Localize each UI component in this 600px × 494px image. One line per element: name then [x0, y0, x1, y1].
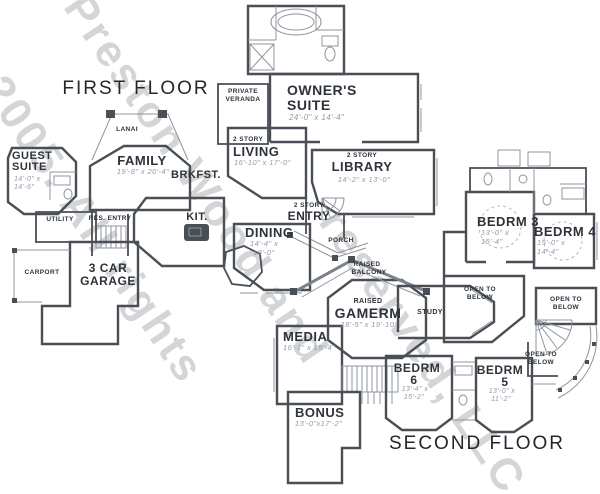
owners-suite-dims: 24'-0" x 14'-4": [289, 114, 344, 122]
raised-balcony-label-2: BALCONY: [352, 270, 387, 277]
open-below-1: OPEN TO: [464, 287, 496, 294]
living-tag: 2 STORY: [233, 137, 263, 144]
room-label-brkfst: BRKFST.: [171, 170, 221, 181]
library-dims: 14'-2" x 13'-0": [338, 176, 390, 184]
gamerm-dims: 18'-5" x 19'-10": [341, 321, 398, 329]
bedrm6-dims-1: 13'-4" x: [402, 386, 428, 393]
room-label-porch: PORCH: [328, 238, 353, 245]
room-label-bonus: BONUS: [295, 406, 344, 419]
closet-icon: [250, 44, 274, 70]
stairs-icon: [96, 226, 126, 248]
bedrm3-dims-2: 15'-4": [481, 238, 503, 246]
dining-dims-1: 14'-4" x: [250, 240, 278, 248]
open-below-2b: BELOW: [553, 305, 579, 312]
family-dims: 19'-8" x 20'-4": [117, 168, 169, 176]
room-label-bedrm5-num: 5: [501, 376, 508, 388]
kitchen-island-icon: [184, 224, 209, 241]
room-label-bedrm4: BEDRM 4: [534, 225, 596, 238]
room-label-family: FAMILY: [117, 154, 166, 167]
room-label-private-veranda: PRIVATE: [228, 89, 258, 96]
room-label-dining: DINING: [245, 226, 294, 239]
room-label-media: MEDIA: [283, 330, 327, 343]
bonus-dims: 13'-0"x17'-2": [295, 420, 342, 428]
bedrm4-dims-2: 14'-4": [537, 248, 559, 256]
guest-suite-dims-1: 14'-0" x: [14, 176, 40, 183]
room-label-kitchen: KIT.: [186, 212, 208, 223]
room-label-bedrm3: BEDRM 3: [477, 215, 539, 228]
room-label-carport: CARPORT: [25, 270, 60, 277]
room-label-private-veranda-2: VERANDA: [226, 97, 261, 104]
second-floor-title: SECOND FLOOR: [389, 434, 565, 453]
open-below-3b: BELOW: [528, 360, 554, 367]
room-label-library: LIBRARY: [332, 160, 393, 173]
toilet-icon: [325, 47, 335, 61]
guest-suite-dims-2: 14'-6": [14, 184, 34, 191]
room-label-garage-2: GARAGE: [80, 275, 136, 287]
open-below-2: OPEN TO: [550, 297, 582, 304]
first-floor-title: FIRST FLOOR: [62, 79, 209, 98]
room-label-gamerm: GAMERM: [335, 306, 402, 320]
room-label-study: STUDY: [417, 309, 443, 316]
room-label-garage: 3 CAR: [89, 262, 128, 274]
room-label-entry: ENTRY: [288, 210, 331, 222]
bedrm4-dims-1: 15'-0" x: [537, 239, 565, 247]
bedrm3-dims-1: 13'-0" x: [481, 229, 509, 237]
room-label-res-entry: RES. ENTRY: [89, 216, 132, 223]
room-label-owners-suite-2: SUITE: [287, 98, 331, 112]
bedrm5-dims-1: 13'-0" x: [489, 388, 515, 395]
room-label-utility: UTILITY: [46, 217, 73, 224]
room-label-guest-suite-2: SUITE: [12, 162, 47, 173]
room-label-bedrm5: BEDRM: [477, 364, 524, 376]
room-label-bedrm6-num: 6: [410, 374, 417, 386]
dining-dims-2: 18'-0": [253, 249, 275, 257]
living-dims: 16'-10" x 17'-0": [234, 159, 291, 167]
room-label-owners-suite: OWNER'S: [287, 83, 357, 97]
gamerm-tag: RAISED: [354, 298, 383, 305]
open-below-1b: BELOW: [467, 295, 493, 302]
bedrm5-dims-2: 11'-2": [491, 396, 511, 403]
media-dims: 16'-1" x 18'-4": [283, 344, 335, 352]
open-below-3: OPEN TO: [525, 352, 557, 359]
bedrm6-dims-2: 15'-2": [404, 394, 424, 401]
room-label-living: LIVING: [233, 145, 279, 158]
raised-balcony-label: RAISED: [354, 262, 381, 269]
floor-plan-page: Preston Wood and © 2005. All rights rese…: [0, 0, 600, 494]
room-label-lanai: LANAI: [116, 127, 138, 134]
